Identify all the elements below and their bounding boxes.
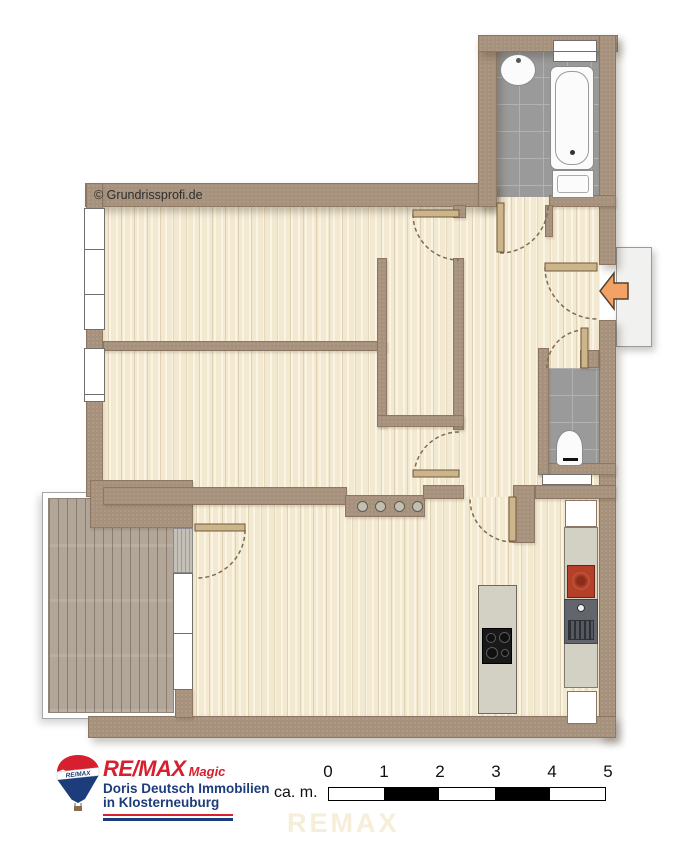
remax-balloon-icon: RE/MAX [54, 754, 102, 812]
scale-bar: 0 1 2 3 4 5 [328, 762, 608, 804]
scale-bar-segments [328, 787, 606, 801]
scale-tick: 5 [603, 762, 612, 782]
scale-segment [329, 788, 384, 800]
scale-segment [550, 788, 605, 800]
scale-segment [384, 788, 439, 800]
door-leaf [413, 470, 459, 477]
scale-tick: 4 [547, 762, 556, 782]
door-leaf [545, 263, 597, 271]
door-leaf [195, 524, 245, 531]
door-arc [413, 214, 459, 260]
scale-unit-label: ca. m. [274, 784, 318, 802]
scale-segment [495, 788, 550, 800]
door-arc [470, 499, 513, 542]
brand-name: RE/MAX [103, 756, 186, 781]
scale-tick: 1 [379, 762, 388, 782]
remax-logo-text: RE/MAXMagic Doris Deutsch Immobilien in … [103, 756, 270, 821]
scale-tick: 0 [323, 762, 332, 782]
door-leaf [413, 210, 459, 217]
doors-overlay [0, 0, 682, 745]
divider-red [103, 814, 233, 817]
scale-tick: 3 [491, 762, 500, 782]
scale-tick: 2 [435, 762, 444, 782]
agency-name: Doris Deutsch Immobilien [103, 782, 270, 796]
floor-plan-page: © Grundrissprofi.de REMAX RE/MAX RE/MAXM… [0, 0, 682, 850]
door-leaf [581, 328, 588, 368]
brand-suffix: Magic [189, 764, 226, 779]
door-leaf [509, 497, 516, 541]
background-watermark: REMAX [287, 808, 400, 839]
door-leaf [497, 203, 504, 252]
divider-blue [103, 818, 233, 821]
door-arc [545, 267, 597, 319]
copyright-watermark: © Grundrissprofi.de [94, 188, 203, 202]
door-arc [500, 205, 548, 253]
door-arc [197, 530, 245, 578]
scale-segment [439, 788, 494, 800]
door-arc [547, 330, 585, 368]
agency-location: in Klosterneuburg [103, 796, 270, 810]
entrance-arrow-icon [600, 273, 628, 309]
